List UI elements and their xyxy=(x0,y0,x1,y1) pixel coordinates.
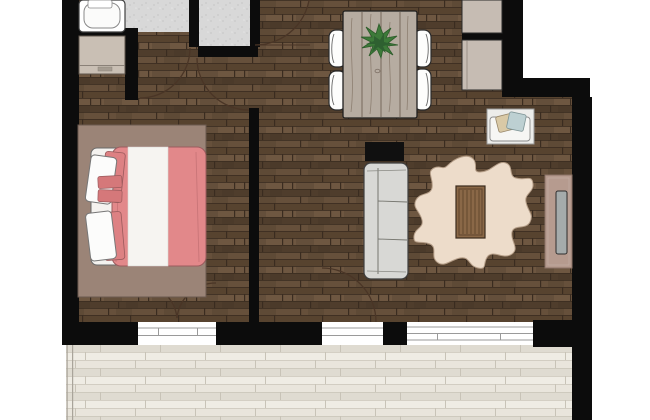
threshold-line xyxy=(322,328,383,329)
threshold-line xyxy=(138,335,216,336)
bed-duvet-stripe xyxy=(128,147,168,266)
bathtub-faucet xyxy=(88,0,112,8)
armchair-cushion-blue xyxy=(506,112,526,132)
wall-left xyxy=(62,0,79,343)
balcony-left-margin xyxy=(62,345,66,420)
living-balcony-threshold xyxy=(322,322,383,345)
tv-screen xyxy=(556,191,567,254)
bed-pillow-red-mid xyxy=(98,175,123,188)
floor-plan-canvas xyxy=(0,0,650,420)
wall-bath-stub xyxy=(125,28,138,100)
wall-bottom-1 xyxy=(62,322,138,345)
wall-right-top xyxy=(502,0,523,80)
threshold-line xyxy=(407,340,536,341)
wall-bottom-2 xyxy=(216,322,322,345)
white-mask-right xyxy=(592,97,650,420)
railing-line-inner xyxy=(72,345,73,420)
bed-pillow-red-mid xyxy=(98,190,122,203)
wall-under-entry xyxy=(198,46,258,57)
wardrobe-knob xyxy=(98,67,112,71)
kitchen-cabinet xyxy=(462,40,502,90)
bed-pillow-white xyxy=(85,211,117,262)
threshold-line xyxy=(138,328,216,329)
threshold-line xyxy=(322,335,383,336)
floor-plan xyxy=(0,0,650,420)
kitchen-cabinet xyxy=(462,0,502,33)
sofa xyxy=(364,163,408,279)
wall-right-main xyxy=(572,97,592,420)
wall-bedroom-living xyxy=(249,108,259,322)
wall-kitchen-gap xyxy=(462,33,502,40)
wardrobe-line xyxy=(79,65,125,66)
threshold-tick xyxy=(500,333,501,340)
bathroom-floor xyxy=(123,0,189,32)
balcony-deck xyxy=(66,345,572,420)
railing-line-outer xyxy=(67,345,68,420)
threshold-line xyxy=(407,327,536,328)
threshold-tick xyxy=(197,328,198,337)
threshold-tick xyxy=(158,328,159,337)
console-table xyxy=(365,142,404,161)
threshold-line xyxy=(407,333,536,334)
wall-entry-right xyxy=(250,0,260,47)
bedroom-balcony-threshold xyxy=(138,322,216,345)
dining-table-grain xyxy=(407,16,408,110)
wall-jog xyxy=(502,78,590,97)
entry-floor xyxy=(198,0,251,47)
wall-bottom-post xyxy=(383,322,407,345)
white-mask-top-right xyxy=(523,0,650,79)
wall-tile-divider xyxy=(189,0,199,47)
white-mask-jog xyxy=(590,78,650,97)
threshold-tick xyxy=(437,333,438,340)
coffee-table xyxy=(456,186,485,238)
